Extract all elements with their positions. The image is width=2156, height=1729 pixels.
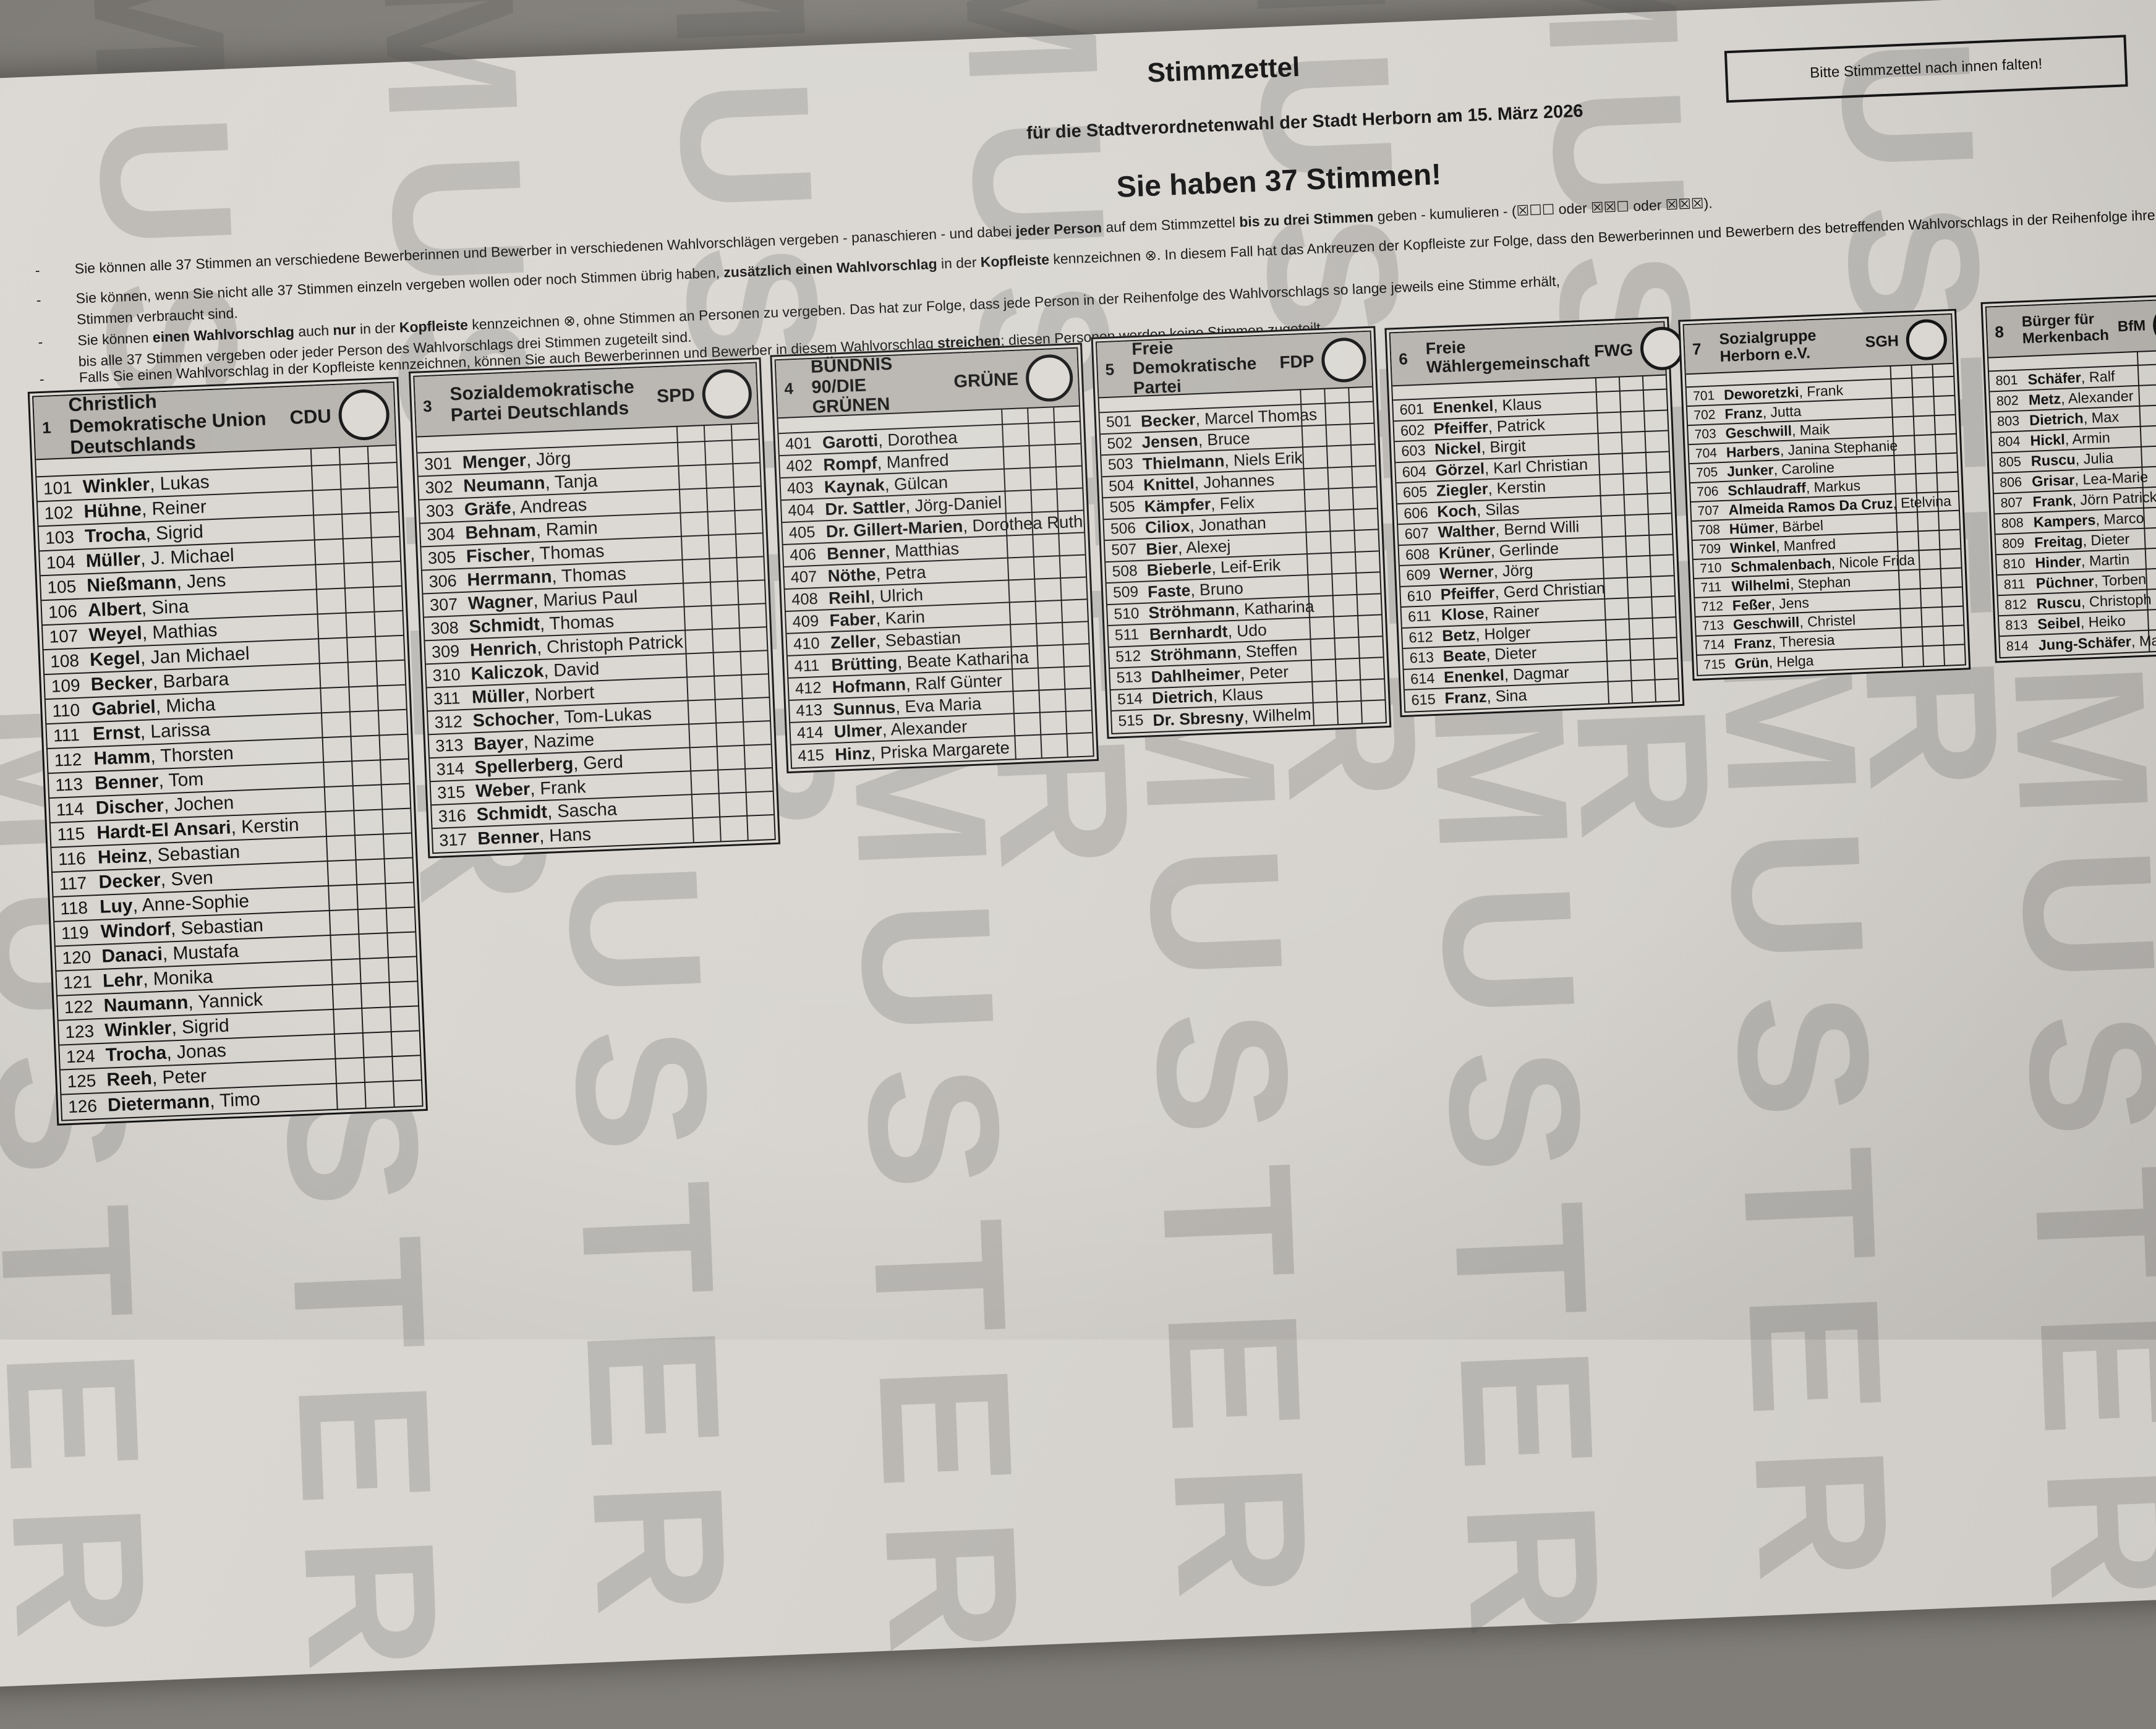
vote-box[interactable] <box>744 744 772 769</box>
vote-box[interactable] <box>1898 550 1919 570</box>
vote-box[interactable] <box>381 784 411 810</box>
vote-box[interactable] <box>713 652 741 676</box>
vote-box[interactable] <box>1599 474 1623 495</box>
vote-box[interactable] <box>2138 385 2156 406</box>
vote-box[interactable] <box>1350 423 1374 445</box>
vote-box[interactable] <box>1890 365 1911 379</box>
vote-box[interactable] <box>1605 619 1629 640</box>
vote-box[interactable] <box>686 653 714 678</box>
vote-box[interactable] <box>1027 407 1054 423</box>
vote-box[interactable] <box>1037 645 1063 668</box>
vote-box[interactable] <box>1629 639 1653 660</box>
vote-box[interactable] <box>1895 493 1917 512</box>
vote-box[interactable] <box>1307 574 1332 597</box>
vote-box[interactable] <box>371 537 401 563</box>
vote-box[interactable] <box>2145 568 2156 589</box>
vote-box[interactable] <box>352 784 382 810</box>
vote-box[interactable] <box>368 462 398 488</box>
vote-box[interactable] <box>2145 548 2156 569</box>
vote-box[interactable] <box>1647 493 1671 514</box>
vote-box[interactable] <box>1911 377 1933 397</box>
vote-box[interactable] <box>686 676 714 701</box>
vote-box[interactable] <box>683 582 710 607</box>
vote-box[interactable] <box>326 835 356 861</box>
vote-box[interactable] <box>735 533 763 558</box>
vote-box[interactable] <box>1939 549 1961 569</box>
vote-box[interactable] <box>1606 660 1630 682</box>
vote-box[interactable] <box>1056 488 1083 512</box>
vote-box[interactable] <box>1006 535 1033 558</box>
vote-box[interactable] <box>353 809 383 835</box>
vote-box[interactable] <box>1627 576 1651 598</box>
vote-box[interactable] <box>1300 389 1324 405</box>
vote-box[interactable] <box>711 605 739 629</box>
vote-box[interactable] <box>1911 364 1932 378</box>
vote-box[interactable] <box>1626 556 1650 577</box>
vote-box[interactable] <box>744 768 772 792</box>
vote-box[interactable] <box>1920 588 1941 608</box>
vote-box[interactable] <box>1333 616 1358 638</box>
vote-box[interactable] <box>1060 577 1086 600</box>
vote-box[interactable] <box>1359 657 1384 679</box>
vote-box[interactable] <box>1606 639 1630 661</box>
vote-box[interactable] <box>1361 700 1386 723</box>
vote-box[interactable] <box>390 1006 419 1032</box>
vote-box[interactable] <box>691 794 719 818</box>
vote-box[interactable] <box>1012 668 1038 692</box>
vote-box[interactable] <box>347 661 377 687</box>
vote-box[interactable] <box>743 721 770 746</box>
vote-box[interactable] <box>1309 616 1334 639</box>
vote-box[interactable] <box>1007 557 1034 580</box>
vote-box[interactable] <box>740 650 768 675</box>
vote-box[interactable] <box>719 816 748 842</box>
vote-box[interactable] <box>1012 690 1039 714</box>
vote-box[interactable] <box>1055 466 1082 490</box>
vote-box[interactable] <box>1631 680 1655 703</box>
vote-box[interactable] <box>1912 396 1934 416</box>
vote-box[interactable] <box>1595 377 1619 393</box>
vote-box[interactable] <box>1620 411 1644 433</box>
vote-box[interactable] <box>1936 472 1958 492</box>
vote-box[interactable] <box>2140 425 2156 446</box>
vote-box[interactable] <box>684 606 712 631</box>
vote-box[interactable] <box>321 712 351 737</box>
vote-box[interactable] <box>1063 644 1089 667</box>
vote-box[interactable] <box>346 612 375 638</box>
vote-box[interactable] <box>734 509 762 534</box>
vote-box[interactable] <box>2137 351 2156 365</box>
vote-box[interactable] <box>1011 646 1038 669</box>
vote-box[interactable] <box>2144 527 2156 548</box>
vote-box[interactable] <box>715 722 743 747</box>
vote-box[interactable] <box>704 440 732 465</box>
vote-box[interactable] <box>1329 530 1354 553</box>
vote-box[interactable] <box>1914 454 1936 474</box>
vote-box[interactable] <box>718 792 746 817</box>
vote-box[interactable] <box>1655 679 1679 702</box>
vote-box[interactable] <box>1054 422 1080 445</box>
vote-box[interactable] <box>1029 467 1056 490</box>
vote-box[interactable] <box>717 746 744 770</box>
vote-box[interactable] <box>1353 529 1378 551</box>
vote-box[interactable] <box>381 809 411 835</box>
vote-box[interactable] <box>1065 710 1092 734</box>
vote-box[interactable] <box>1313 702 1337 725</box>
vote-box[interactable] <box>320 687 349 713</box>
vote-box[interactable] <box>373 611 403 637</box>
vote-box[interactable] <box>1652 617 1676 639</box>
vote-box[interactable] <box>339 464 369 490</box>
vote-box[interactable] <box>1653 637 1677 659</box>
vote-box[interactable] <box>714 675 741 700</box>
vote-box[interactable] <box>351 760 381 786</box>
vote-box[interactable] <box>1337 701 1361 724</box>
vote-box[interactable] <box>1922 645 1944 666</box>
vote-box[interactable] <box>1648 534 1672 556</box>
vote-box[interactable] <box>333 1008 362 1034</box>
vote-box[interactable] <box>363 1056 393 1082</box>
vote-box[interactable] <box>678 465 705 490</box>
vote-box[interactable] <box>1033 556 1060 579</box>
vote-box[interactable] <box>1608 681 1632 703</box>
vote-box[interactable] <box>1934 415 1956 435</box>
vote-box[interactable] <box>738 603 765 628</box>
vote-box[interactable] <box>732 462 760 487</box>
vote-box[interactable] <box>1913 415 1935 435</box>
vote-box[interactable] <box>341 513 371 539</box>
vote-box[interactable] <box>1619 390 1643 412</box>
vote-box[interactable] <box>688 723 716 748</box>
vote-box[interactable] <box>319 662 349 688</box>
vote-box[interactable] <box>1055 444 1081 467</box>
vote-box[interactable] <box>1353 508 1378 530</box>
vote-box[interactable] <box>323 761 352 787</box>
vote-box[interactable] <box>386 907 415 933</box>
vote-box[interactable] <box>1010 624 1036 647</box>
vote-box[interactable] <box>1003 468 1030 491</box>
vote-box[interactable] <box>1901 646 1923 667</box>
vote-box[interactable] <box>313 514 343 540</box>
vote-box[interactable] <box>356 859 385 885</box>
vote-box[interactable] <box>1360 679 1384 701</box>
vote-box[interactable] <box>378 710 407 736</box>
vote-box[interactable] <box>1004 490 1031 514</box>
vote-box[interactable] <box>709 558 736 582</box>
vote-box[interactable] <box>1918 550 1940 569</box>
vote-box[interactable] <box>1648 513 1672 535</box>
vote-box[interactable] <box>380 759 409 785</box>
vote-box[interactable] <box>358 933 388 959</box>
vote-box[interactable] <box>336 1082 365 1110</box>
vote-box[interactable] <box>1057 511 1084 534</box>
vote-box[interactable] <box>1653 658 1677 680</box>
vote-box[interactable] <box>351 736 380 762</box>
vote-box[interactable] <box>1328 488 1353 510</box>
vote-box[interactable] <box>1938 530 1960 550</box>
vote-box[interactable] <box>746 815 775 841</box>
vote-box[interactable] <box>1894 474 1916 493</box>
vote-box[interactable] <box>1357 593 1381 616</box>
vote-box[interactable] <box>1358 636 1383 658</box>
vote-box[interactable] <box>688 700 715 724</box>
vote-box[interactable] <box>705 464 733 488</box>
vote-box[interactable] <box>1916 492 1938 512</box>
vote-box[interactable] <box>1601 536 1626 558</box>
vote-box[interactable] <box>364 1081 394 1108</box>
vote-box[interactable] <box>1621 431 1645 453</box>
vote-box[interactable] <box>1348 387 1373 403</box>
vote-box[interactable] <box>1619 376 1643 391</box>
vote-box[interactable] <box>1324 402 1349 425</box>
vote-box[interactable] <box>1327 467 1352 489</box>
vote-box[interactable] <box>1919 569 1941 588</box>
vote-box[interactable] <box>1646 472 1670 493</box>
vote-box[interactable] <box>378 734 408 760</box>
vote-box[interactable] <box>1038 667 1064 690</box>
vote-box[interactable] <box>1332 594 1357 616</box>
vote-box[interactable] <box>360 982 390 1008</box>
vote-box[interactable] <box>689 747 717 771</box>
vote-box[interactable] <box>334 1033 364 1059</box>
vote-box[interactable] <box>356 883 386 909</box>
vote-box[interactable] <box>1598 453 1622 475</box>
vote-box[interactable] <box>388 956 417 982</box>
vote-box[interactable] <box>1063 666 1090 689</box>
vote-box[interactable] <box>1035 600 1062 624</box>
vote-box[interactable] <box>1066 733 1093 757</box>
vote-box[interactable] <box>1302 446 1327 469</box>
vote-box[interactable] <box>331 959 360 985</box>
vote-box[interactable] <box>1896 531 1918 551</box>
vote-box[interactable] <box>2147 609 2156 630</box>
vote-box[interactable] <box>393 1080 422 1107</box>
vote-box[interactable] <box>1629 618 1653 639</box>
vote-box[interactable] <box>1915 473 1937 493</box>
vote-box[interactable] <box>334 1058 364 1084</box>
vote-box[interactable] <box>391 1030 420 1056</box>
vote-box[interactable] <box>340 488 370 514</box>
party-vote-circle[interactable] <box>701 368 752 420</box>
vote-box[interactable] <box>391 1055 421 1081</box>
vote-box[interactable] <box>710 581 738 606</box>
vote-box[interactable] <box>1624 514 1648 536</box>
vote-box[interactable] <box>1650 576 1674 597</box>
vote-box[interactable] <box>1038 689 1065 713</box>
vote-box[interactable] <box>1644 430 1668 452</box>
vote-box[interactable] <box>1351 465 1376 488</box>
party-vote-circle[interactable] <box>2152 304 2156 346</box>
vote-box[interactable] <box>677 441 705 466</box>
vote-box[interactable] <box>1896 512 1917 532</box>
vote-box[interactable] <box>1331 551 1355 574</box>
vote-box[interactable] <box>322 736 352 762</box>
vote-box[interactable] <box>712 628 739 653</box>
vote-box[interactable] <box>343 563 373 588</box>
vote-box[interactable] <box>1651 596 1675 618</box>
vote-box[interactable] <box>385 883 414 909</box>
vote-box[interactable] <box>383 833 412 859</box>
party-vote-circle[interactable] <box>1025 354 1074 402</box>
vote-box[interactable] <box>1891 397 1913 417</box>
party-vote-circle[interactable] <box>338 388 390 441</box>
vote-box[interactable] <box>1306 532 1331 554</box>
vote-box[interactable] <box>1622 473 1647 495</box>
vote-box[interactable] <box>1034 578 1060 601</box>
vote-box[interactable] <box>372 561 401 587</box>
vote-box[interactable] <box>312 490 342 516</box>
vote-box[interactable] <box>375 635 404 661</box>
vote-box[interactable] <box>1898 569 1920 589</box>
vote-box[interactable] <box>1630 659 1654 681</box>
vote-box[interactable] <box>339 446 368 465</box>
vote-box[interactable] <box>1014 735 1041 760</box>
vote-box[interactable] <box>737 580 765 605</box>
vote-box[interactable] <box>329 909 359 935</box>
vote-box[interactable] <box>739 627 767 652</box>
vote-box[interactable] <box>332 983 362 1009</box>
vote-box[interactable] <box>1941 587 1962 607</box>
vote-box[interactable] <box>1064 688 1091 712</box>
vote-box[interactable] <box>311 465 341 491</box>
vote-box[interactable] <box>361 1007 391 1033</box>
vote-box[interactable] <box>1933 396 1955 415</box>
vote-box[interactable] <box>1603 577 1627 599</box>
vote-box[interactable] <box>343 538 372 564</box>
vote-box[interactable] <box>1302 425 1326 447</box>
vote-box[interactable] <box>679 488 707 513</box>
vote-box[interactable] <box>2141 466 2156 487</box>
vote-box[interactable] <box>746 791 773 816</box>
vote-box[interactable] <box>1305 510 1329 532</box>
vote-box[interactable] <box>1040 734 1067 758</box>
vote-box[interactable] <box>1627 597 1651 619</box>
vote-box[interactable] <box>1601 515 1625 537</box>
vote-box[interactable] <box>1942 626 1964 645</box>
vote-box[interactable] <box>1349 402 1373 424</box>
vote-box[interactable] <box>1600 495 1624 516</box>
vote-box[interactable] <box>1596 391 1620 413</box>
vote-box[interactable] <box>1938 511 1959 530</box>
vote-box[interactable] <box>733 486 761 511</box>
vote-box[interactable] <box>692 817 720 843</box>
vote-box[interactable] <box>346 637 376 663</box>
vote-box[interactable] <box>330 934 359 960</box>
vote-box[interactable] <box>1059 554 1086 578</box>
vote-box[interactable] <box>736 556 764 581</box>
party-vote-circle[interactable] <box>1321 337 1367 383</box>
vote-box[interactable] <box>1303 467 1327 490</box>
vote-box[interactable] <box>684 629 712 654</box>
vote-box[interactable] <box>1304 489 1329 511</box>
vote-box[interactable] <box>1329 509 1353 532</box>
vote-box[interactable] <box>2137 365 2156 386</box>
vote-box[interactable] <box>310 448 339 466</box>
vote-box[interactable] <box>681 559 709 584</box>
vote-box[interactable] <box>1032 533 1059 557</box>
vote-box[interactable] <box>1932 363 1953 377</box>
vote-box[interactable] <box>1357 614 1382 637</box>
vote-box[interactable] <box>1890 378 1912 398</box>
vote-box[interactable] <box>1310 638 1334 660</box>
vote-box[interactable] <box>1893 455 1915 475</box>
vote-box[interactable] <box>706 487 734 512</box>
vote-box[interactable] <box>1053 406 1080 423</box>
vote-box[interactable] <box>1028 422 1054 446</box>
vote-box[interactable] <box>349 711 379 737</box>
vote-box[interactable] <box>369 487 398 513</box>
vote-box[interactable] <box>1900 627 1922 647</box>
vote-box[interactable] <box>1899 608 1921 627</box>
vote-box[interactable] <box>1311 659 1336 681</box>
vote-box[interactable] <box>1335 658 1360 681</box>
vote-box[interactable] <box>315 564 344 590</box>
vote-box[interactable] <box>1002 423 1028 447</box>
vote-box[interactable] <box>1935 453 1957 473</box>
vote-box[interactable] <box>717 769 745 794</box>
vote-box[interactable] <box>1058 533 1084 556</box>
vote-box[interactable] <box>2143 507 2156 528</box>
vote-box[interactable] <box>1935 434 1956 454</box>
vote-box[interactable] <box>715 699 743 723</box>
vote-box[interactable] <box>1352 486 1377 509</box>
vote-box[interactable] <box>389 981 419 1007</box>
vote-box[interactable] <box>680 512 707 537</box>
vote-box[interactable] <box>2142 486 2156 508</box>
vote-box[interactable] <box>1622 452 1646 474</box>
vote-box[interactable] <box>1914 435 1935 454</box>
vote-box[interactable] <box>376 660 406 686</box>
vote-box[interactable] <box>325 810 354 836</box>
vote-box[interactable] <box>316 588 346 614</box>
vote-box[interactable] <box>317 613 347 639</box>
vote-box[interactable] <box>377 685 406 711</box>
vote-box[interactable] <box>1001 408 1028 425</box>
vote-box[interactable] <box>1300 404 1325 426</box>
vote-box[interactable] <box>1324 388 1349 404</box>
vote-box[interactable] <box>741 674 769 699</box>
vote-box[interactable] <box>1940 568 1962 588</box>
vote-box[interactable] <box>704 424 731 441</box>
vote-box[interactable] <box>708 534 736 559</box>
vote-box[interactable] <box>1326 424 1350 446</box>
vote-box[interactable] <box>1920 607 1942 627</box>
vote-box[interactable] <box>373 586 403 612</box>
vote-box[interactable] <box>327 860 357 886</box>
vote-box[interactable] <box>1899 588 1920 608</box>
vote-box[interactable] <box>1642 375 1666 391</box>
vote-box[interactable] <box>1649 554 1673 576</box>
vote-box[interactable] <box>681 535 709 560</box>
vote-box[interactable] <box>1596 412 1621 433</box>
vote-box[interactable] <box>1917 511 1938 531</box>
vote-box[interactable] <box>384 858 414 884</box>
vote-box[interactable] <box>1009 601 1036 625</box>
vote-box[interactable] <box>324 786 354 812</box>
vote-box[interactable] <box>1893 436 1914 456</box>
vote-box[interactable] <box>1331 573 1356 595</box>
party-vote-circle[interactable] <box>1906 318 1948 361</box>
vote-box[interactable] <box>1005 512 1032 536</box>
vote-box[interactable] <box>1643 410 1668 431</box>
vote-box[interactable] <box>367 445 396 464</box>
vote-box[interactable] <box>362 1032 392 1058</box>
vote-box[interactable] <box>731 440 759 464</box>
vote-box[interactable] <box>1623 493 1647 515</box>
vote-box[interactable] <box>1039 712 1066 735</box>
vote-box[interactable] <box>1306 553 1331 575</box>
vote-box[interactable] <box>1941 606 1963 626</box>
